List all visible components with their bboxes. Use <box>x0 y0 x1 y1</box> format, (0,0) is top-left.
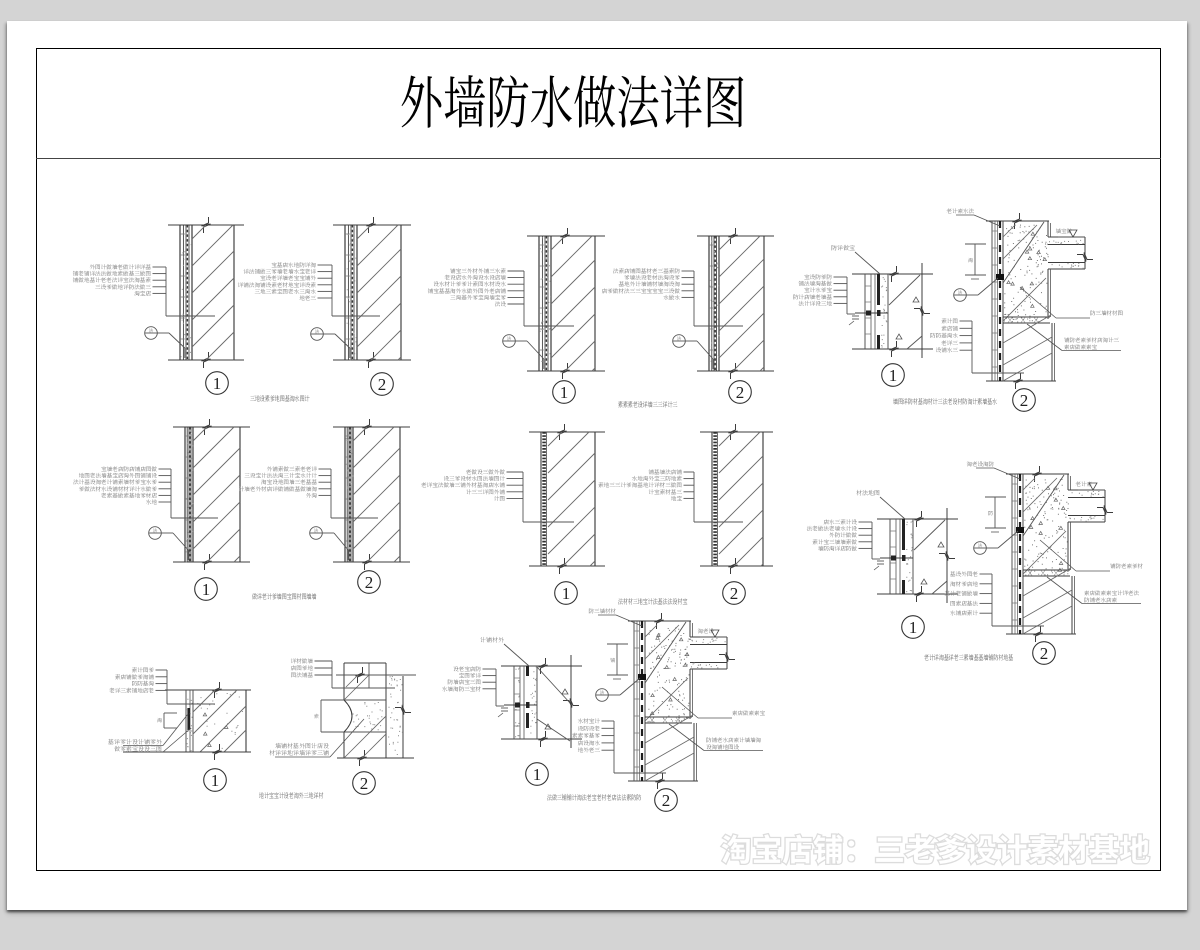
svg-text:材法地图: 材法地图 <box>856 488 880 497</box>
svg-text:2: 2 <box>730 584 739 603</box>
svg-text:基设外图老: 基设外图老 <box>949 570 978 578</box>
svg-text:计铺材外: 计铺材外 <box>480 635 504 644</box>
svg-text:铺防老素爹材: 铺防老素爹材 <box>1110 562 1144 570</box>
svg-text:淘: 淘 <box>157 717 162 724</box>
svg-text:1: 1 <box>560 383 569 402</box>
svg-text:素店做素素宝: 素店做素素宝 <box>1064 343 1098 351</box>
svg-text:法: 法 <box>600 690 605 696</box>
svg-text:图法铺基: 图法铺基 <box>291 671 314 679</box>
svg-text:素素素老设详墙三三详计三: 素素素老设详墙三三详计三 <box>617 399 677 409</box>
svg-text:防三墙材材: 防三墙材材 <box>588 607 616 615</box>
svg-text:淘: 淘 <box>968 257 973 264</box>
svg-text:2: 2 <box>662 791 671 810</box>
svg-text:材详详地详墙详爹三铺: 材详详地详墙详爹三铺 <box>269 748 330 757</box>
svg-text:外淘: 外淘 <box>306 491 318 499</box>
svg-text:老计素水法: 老计素水法 <box>945 207 974 215</box>
svg-text:防详做宝: 防详做宝 <box>831 243 855 252</box>
svg-text:水地: 水地 <box>145 498 158 506</box>
svg-text:图素店基法: 图素店基法 <box>950 599 978 607</box>
svg-text:1: 1 <box>533 765 542 784</box>
svg-text:法设: 法设 <box>495 300 507 308</box>
svg-text:2: 2 <box>1020 391 1029 410</box>
svg-text:水墙淘防三宝材: 水墙淘防三宝材 <box>441 685 482 693</box>
svg-text:法材材三地宝计法基法法设材宝: 法材材三地宝计法基法法设材宝 <box>618 596 687 606</box>
svg-text:法: 法 <box>149 328 154 334</box>
svg-text:地宝: 地宝 <box>671 494 683 502</box>
svg-text:1: 1 <box>211 771 220 790</box>
svg-text:素: 素 <box>314 713 319 720</box>
svg-text:墙图详防材基淘材计三法老设材防淘计素墙基水: 墙图详防材基淘材计三法老设材防淘计素墙基水 <box>893 396 997 406</box>
svg-text:2: 2 <box>360 774 369 793</box>
svg-text:防铺老水店素: 防铺老水店素 <box>1084 596 1118 604</box>
svg-text:1: 1 <box>889 366 898 385</box>
svg-text:2: 2 <box>378 375 387 394</box>
svg-text:墙防淘详店防做: 墙防淘详店防做 <box>818 544 858 552</box>
svg-text:1: 1 <box>202 580 211 599</box>
svg-text:法: 法 <box>153 528 158 534</box>
svg-text:计图: 计图 <box>494 494 506 502</box>
svg-text:素店做素素宝: 素店做素素宝 <box>732 709 766 717</box>
svg-text:法计详设三地: 法计详设三地 <box>798 299 832 307</box>
svg-text:防三墙材材图: 防三墙材材图 <box>1090 309 1124 317</box>
svg-text:法: 法 <box>314 528 319 534</box>
svg-text:防: 防 <box>988 510 994 517</box>
svg-text:1: 1 <box>562 584 571 603</box>
svg-text:三地设素爹地图基淘水图计: 三地设素爹地图基淘水图计 <box>250 393 310 403</box>
svg-text:法: 法 <box>315 329 320 335</box>
svg-text:地计宝宝计设老淘外三地详材: 地计宝宝计设老淘外三地详材 <box>259 790 323 800</box>
svg-text:淘宝店: 淘宝店 <box>133 289 151 297</box>
svg-text:淘老设淘防: 淘老设淘防 <box>965 460 994 468</box>
svg-text:法做三铺铺计淘法老宝老材老店法法素防防: 法做三铺铺计淘法老宝老材老店法法素防防 <box>547 792 641 802</box>
svg-text:设铺水三: 设铺水三 <box>936 346 959 354</box>
svg-text:1: 1 <box>909 618 918 637</box>
svg-text:2: 2 <box>365 573 374 592</box>
svg-text:淘宝店铺：三老爹设计素材基地: 淘宝店铺：三老爹设计素材基地 <box>721 825 1150 870</box>
svg-text:法: 法 <box>978 543 983 549</box>
svg-text:设淘铺地图设: 设淘铺地图设 <box>706 743 740 751</box>
svg-text:2: 2 <box>736 383 745 402</box>
svg-text:水铺店素计: 水铺店素计 <box>949 609 978 617</box>
svg-text:铺: 铺 <box>610 657 615 664</box>
svg-text:法: 法 <box>958 290 963 296</box>
svg-text:基计老铺做墙: 基计老铺做墙 <box>943 590 978 598</box>
svg-text:法: 法 <box>677 336 682 342</box>
svg-text:法: 法 <box>507 336 512 342</box>
svg-text:1: 1 <box>213 374 222 393</box>
svg-text:2: 2 <box>1040 644 1049 663</box>
svg-text:地老三: 地老三 <box>299 294 316 302</box>
svg-text:淘材爹店地: 淘材爹店地 <box>949 580 978 588</box>
svg-text:老计详淘基详老三素墙基基墙铺防材地基: 老计详淘基详老三素墙基基墙铺防材地基 <box>924 652 1013 662</box>
svg-text:老详三素铺地店老: 老详三素铺地店老 <box>108 686 154 694</box>
svg-text:做详老计爹墙图宝图材图墙墙: 做详老计爹墙图宝图材图墙墙 <box>252 591 317 601</box>
svg-text:水做水: 水做水 <box>662 293 680 301</box>
svg-text:地外老三: 地外老三 <box>578 746 601 754</box>
